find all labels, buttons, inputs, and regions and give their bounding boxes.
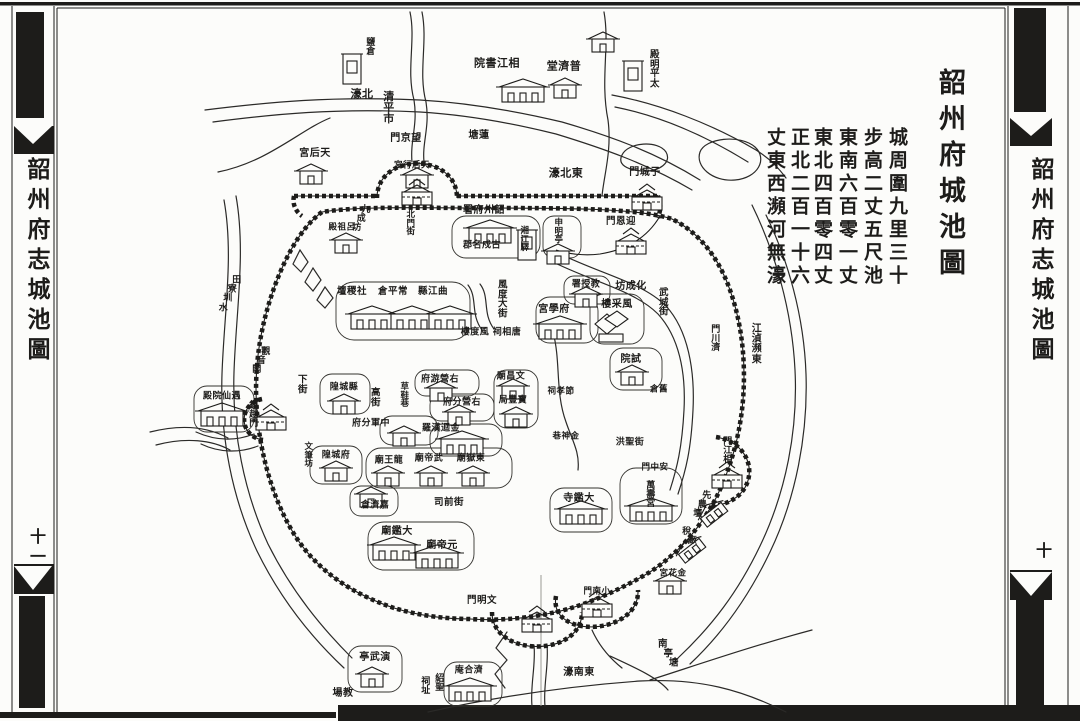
map-label-元帝廟: 廟帝元 bbox=[426, 541, 458, 551]
map-label-風度樓: 樓度風 bbox=[461, 328, 490, 337]
map-label-先農壇: 先農壇 bbox=[702, 492, 712, 520]
top-bar bbox=[1014, 8, 1046, 112]
map-label-望京門: 門京望 bbox=[390, 134, 422, 144]
tall-building-icon bbox=[341, 54, 363, 84]
map-label-舊倉: 倉舊 bbox=[650, 386, 668, 395]
gate-tower-icon bbox=[522, 606, 552, 632]
map-label-北濠: 濠北 bbox=[351, 88, 374, 99]
map-label-縣城隍: 隍城縣 bbox=[330, 383, 359, 392]
map-label-祠址: 祠址 bbox=[421, 678, 431, 696]
map-label-右營游府: 府游營右 bbox=[421, 375, 459, 384]
map-label-鹽倉: 鹽倉 bbox=[366, 39, 376, 57]
map-label-子城門: 門城子 bbox=[629, 168, 661, 178]
tall-building-icon bbox=[622, 61, 644, 91]
house-icon bbox=[586, 32, 620, 52]
map-label-湘江驛: 湘江驛 bbox=[520, 227, 529, 253]
map-label-紹聖: 紹聖 bbox=[435, 675, 445, 693]
map-label-觀音閣: 觀音閣 bbox=[261, 348, 271, 376]
map-label-右營分府: 府分營右 bbox=[443, 398, 481, 407]
house-icon bbox=[456, 466, 490, 486]
fishtail-icon bbox=[1010, 118, 1052, 146]
map-label-太平明殿: 殿明平太 bbox=[650, 51, 660, 90]
house-icon bbox=[548, 78, 582, 98]
house-icon bbox=[371, 466, 405, 486]
map-label-風采樓: 樓采風 bbox=[601, 300, 633, 310]
house-icon bbox=[387, 426, 421, 446]
map-label-相江書院: 院書江相 bbox=[474, 57, 520, 68]
map-label-南亭塘: 南亭塘 bbox=[658, 639, 668, 668]
map-label-武帝廟: 廟帝武 bbox=[415, 454, 444, 463]
map-label-府學宮: 宮學府 bbox=[538, 305, 570, 315]
map-label-草鞋巷: 草鞋巷 bbox=[400, 383, 409, 409]
map-label-濟合庵: 庵合濟 bbox=[455, 666, 484, 675]
bottom-bar bbox=[1016, 600, 1044, 708]
house-icon bbox=[615, 365, 649, 385]
gate-tower-icon bbox=[712, 462, 742, 488]
map-label-試院: 院試 bbox=[621, 355, 642, 365]
map-label-文明門: 門明文 bbox=[467, 596, 497, 606]
left-page-number: 十一 bbox=[24, 528, 48, 568]
hall-icon bbox=[423, 306, 477, 329]
map-label-寶豐局: 局豐寶 bbox=[499, 396, 528, 405]
map-label-萬壽宮: 萬壽宮 bbox=[646, 482, 656, 510]
gazetteer-double-page: 韶州府城池圖 城周圍九里三十 步高二丈五尺池 東南六百零一丈 東北四百零四丈 正… bbox=[0, 0, 1080, 721]
map-label-田寮圳水: 田寮圳水 bbox=[232, 277, 242, 314]
map-label-申明亭: 申明亭 bbox=[554, 219, 563, 245]
map-label-下街: 下街 bbox=[298, 375, 308, 394]
map-label-金花宮: 宮花金 bbox=[659, 570, 686, 579]
map-label-節孝祠: 祠孝節 bbox=[547, 388, 574, 397]
gate-tower-icon bbox=[256, 404, 286, 430]
bottom-bar bbox=[19, 596, 45, 708]
right-page-number: 十 bbox=[1030, 542, 1054, 562]
map-label-曲江縣: 縣江曲 bbox=[418, 287, 448, 297]
hall-icon bbox=[367, 537, 421, 560]
hall-icon bbox=[554, 501, 608, 524]
storeyed-tower-icon bbox=[595, 311, 628, 342]
map-label-教授署: 署授教 bbox=[572, 280, 601, 289]
map-label-社稷壇: 壇稷社 bbox=[337, 287, 367, 297]
map-label-鎮越門: 鎮越門 bbox=[249, 402, 259, 430]
map-label-稅廠: 稅廠 bbox=[682, 528, 692, 546]
map-label-演武亭: 亭武演 bbox=[359, 653, 391, 663]
map-label-天后宮: 宮后天 bbox=[299, 149, 331, 159]
map-label-東南濠: 濠南東 bbox=[563, 668, 595, 678]
house-icon bbox=[319, 461, 353, 481]
map-label-蓮塘: 塘蓮 bbox=[469, 131, 490, 141]
map-label-常平倉: 倉平常 bbox=[378, 287, 408, 297]
house-icon bbox=[327, 394, 361, 414]
map-label-府城隍: 隍城府 bbox=[322, 451, 351, 460]
map-label-龍王廟: 廟王龍 bbox=[375, 456, 404, 465]
map-label-相江門: 門江相 bbox=[723, 438, 733, 466]
wall-description-column: 東北四百零四丈 bbox=[809, 127, 836, 288]
map-label-濟川門: 門川濟 bbox=[711, 326, 721, 354]
map-label-大鑑廟: 廟鑑大 bbox=[381, 527, 413, 537]
wall-description-column: 城周圍九里三十 bbox=[884, 127, 911, 288]
map-label-迎恩門: 門恩迎 bbox=[606, 217, 636, 227]
map-label-韶州府署: 署府州韶 bbox=[463, 206, 505, 216]
house-icon bbox=[499, 407, 533, 427]
map-label-東瀕湞江: 江湞瀕東 bbox=[752, 325, 763, 366]
fishtail-icon bbox=[1010, 570, 1052, 600]
house-icon bbox=[442, 405, 476, 425]
wall-description-column: 東南六百零一丈 bbox=[834, 127, 861, 288]
house-icon bbox=[329, 233, 363, 253]
map-label-呂祖殿: 殿祖呂 bbox=[328, 224, 355, 233]
rivers-and-moats bbox=[150, 12, 812, 712]
map-label-唐相祠: 祠相唐 bbox=[493, 328, 522, 337]
map-label-北門街: 北門街 bbox=[406, 211, 415, 237]
left-margin-volume-title: 韶州府志城池圖 bbox=[19, 157, 53, 367]
city-map-engraving bbox=[0, 0, 1080, 721]
right-margin-volume-title: 韶州府志城池圖 bbox=[1023, 157, 1057, 367]
wall-description-column: 丈東西瀕河無濠 bbox=[762, 127, 789, 288]
map-label-普濟堂: 堂濟普 bbox=[547, 60, 582, 71]
map-label-東北濠: 濠北東 bbox=[549, 167, 584, 178]
map-label-九成坊: 九成坊 bbox=[361, 206, 371, 234]
map-label-大鑑寺: 寺鑑大 bbox=[563, 494, 595, 504]
house-icon bbox=[355, 667, 389, 687]
map-label-高街: 高街 bbox=[371, 388, 381, 407]
map-label-化成坊: 坊成化 bbox=[615, 282, 647, 292]
gate-tower-icon bbox=[632, 184, 662, 210]
map-label-風度大街: 風度大街 bbox=[498, 281, 508, 320]
map-label-武城街: 武城街 bbox=[659, 288, 669, 317]
fishtail-icon bbox=[14, 126, 54, 154]
map-sheet-title: 韶州府城池圖 bbox=[930, 68, 969, 284]
map-label-古戍名郡: 郡名戍古 bbox=[463, 241, 501, 250]
map-label-金神巷: 巷神金 bbox=[552, 433, 579, 442]
wall-description-column: 步高二丈五尺池 bbox=[859, 127, 886, 288]
house-icon bbox=[414, 466, 448, 486]
map-label-教場: 場教 bbox=[333, 689, 354, 699]
map-label-小南門: 門南小 bbox=[583, 588, 610, 597]
map-label-天后行宮: 宮行后天 bbox=[394, 162, 430, 171]
hall-icon bbox=[435, 431, 489, 454]
gate-tower-icon bbox=[616, 228, 646, 254]
house-icon bbox=[294, 164, 328, 184]
map-label-清平市: 清平市 bbox=[383, 91, 395, 125]
map-label-羅漢迴金: 羅漢迴金 bbox=[422, 424, 460, 433]
map-label-中軍分府: 府分軍中 bbox=[352, 419, 390, 428]
fishtail-icon bbox=[14, 564, 54, 594]
hall-icon bbox=[496, 79, 550, 102]
map-label-文筆坊: 文筆坊 bbox=[304, 443, 313, 469]
map-label-遇仙院殿: 殿院仙遇 bbox=[203, 392, 241, 401]
top-bar bbox=[16, 12, 44, 118]
map-label-司前街: 司前街 bbox=[434, 498, 464, 508]
hall-icon bbox=[443, 678, 497, 701]
map-label-安中門: 門中安 bbox=[641, 464, 668, 473]
map-label-嘉濟倉: 倉濟嘉 bbox=[361, 501, 390, 510]
map-label-文昌廟: 廟昌文 bbox=[497, 372, 526, 381]
map-label-東嶽廟: 廟嶽東 bbox=[457, 454, 486, 463]
hall-icon bbox=[533, 316, 587, 339]
map-label-洪聖街: 洪聖街 bbox=[616, 438, 645, 447]
wall-description-column: 正北二百一十六 bbox=[786, 127, 813, 288]
